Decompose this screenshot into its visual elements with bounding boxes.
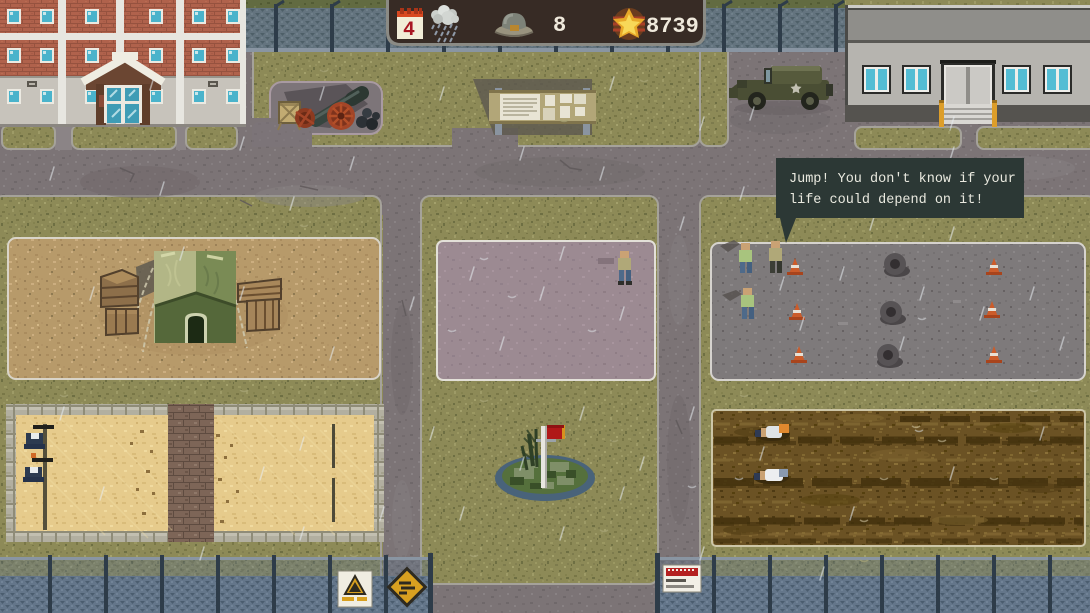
svg-text:8739: 8739 (646, 14, 699, 39)
svg-text:Jump! You don't know if your: Jump! You don't know if your (789, 172, 1016, 187)
svg-text:8: 8 (553, 13, 566, 38)
svg-text:life could depend on it!: life could depend on it! (789, 193, 983, 208)
svg-text:4: 4 (403, 19, 415, 42)
